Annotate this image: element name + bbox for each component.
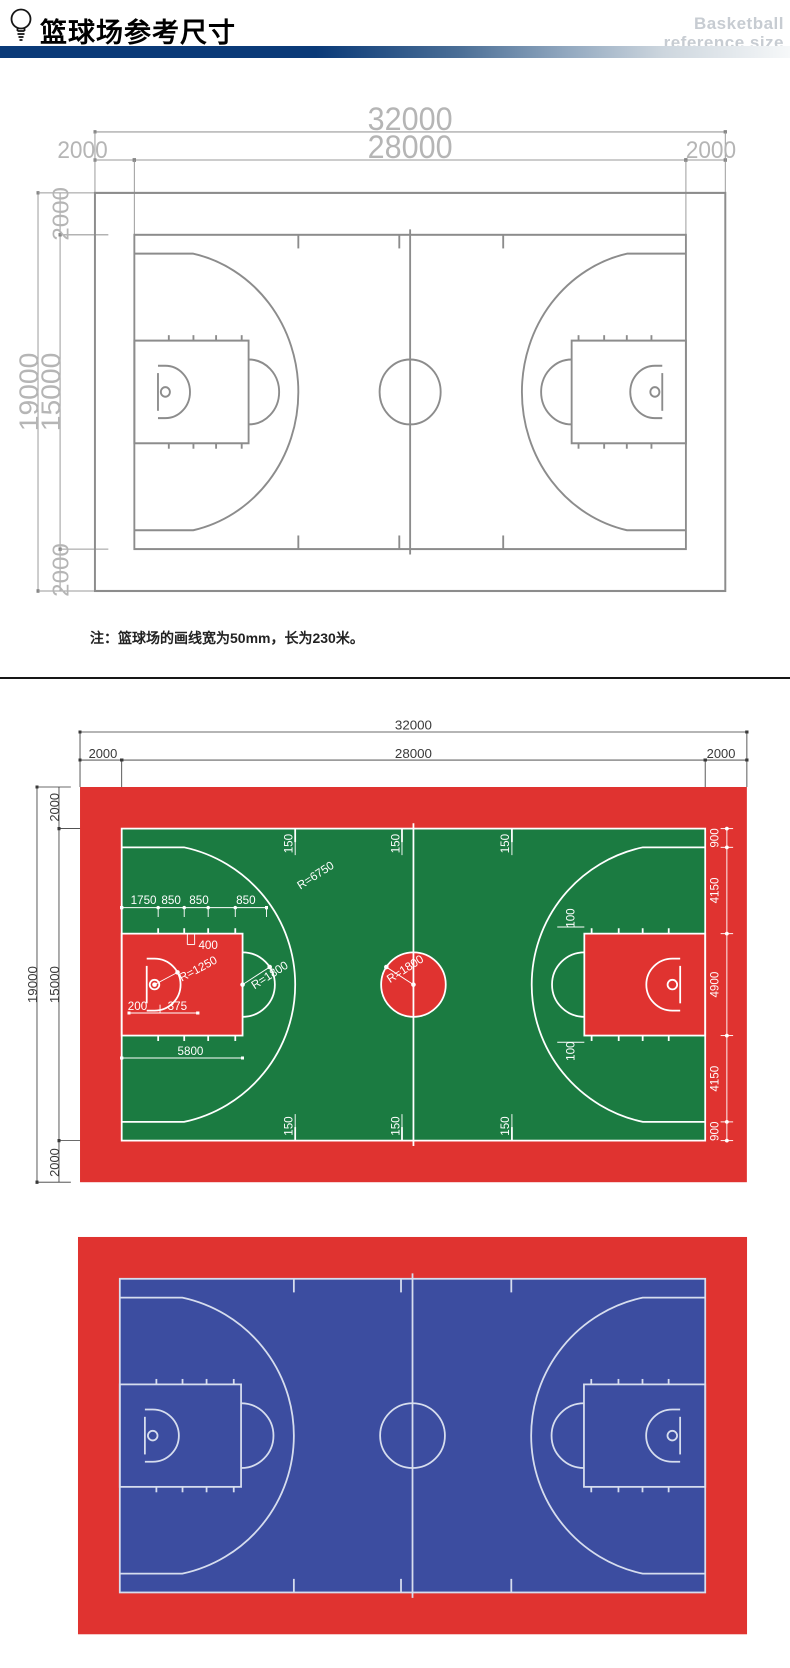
d2-offset-4150-top: 4150 bbox=[709, 877, 722, 903]
d2-margin-right-label: 2000 bbox=[707, 746, 736, 761]
d2-key-5800: 5800 bbox=[178, 1045, 204, 1058]
d2-board-200: 200 bbox=[128, 1000, 148, 1013]
diagram-colored-court: 32000 28000 2000 2000 19000 15000 2000 2… bbox=[0, 670, 760, 1195]
d1-court-width-label: 28000 bbox=[368, 128, 453, 165]
d1-court-drawing bbox=[134, 229, 686, 554]
english-subtitle-line1: Basketball bbox=[664, 14, 784, 33]
lightbulb-icon bbox=[8, 6, 34, 44]
d1-dimension-labels: 32000 28000 2000 2000 19000 15000 2000 2… bbox=[14, 100, 736, 597]
d1-margin-left-label: 2000 bbox=[57, 136, 107, 163]
page: 篮球场参考尺寸 Basketball reference size bbox=[0, 0, 790, 1668]
d2-chain-850: 850 bbox=[236, 894, 256, 907]
d2-hash-100-top: 100 bbox=[564, 908, 577, 928]
d2-mark-150: 150 bbox=[389, 1116, 402, 1136]
d2-chain-850: 850 bbox=[161, 894, 181, 907]
note-text: 注：篮球场的画线宽为50mm，长为230米。 bbox=[90, 628, 364, 648]
d2-court-height-label: 15000 bbox=[47, 966, 62, 1003]
diagram-line-court: 32000 28000 2000 2000 19000 15000 2000 2… bbox=[0, 85, 745, 600]
d2-total-height-label: 19000 bbox=[25, 966, 40, 1003]
d2-offset-900-bottom: 900 bbox=[709, 1121, 722, 1141]
header: 篮球场参考尺寸 Basketball reference size bbox=[0, 0, 790, 62]
d2-mark-150: 150 bbox=[499, 1116, 512, 1136]
d1-margin-top-label: 2000 bbox=[48, 187, 73, 241]
d2-total-width-label: 32000 bbox=[395, 718, 432, 733]
d2-offset-4900: 4900 bbox=[709, 971, 722, 997]
d2-offset-4150-bottom: 4150 bbox=[709, 1065, 722, 1091]
page-title: 篮球场参考尺寸 bbox=[40, 11, 236, 50]
diagram-blue-court bbox=[0, 1210, 760, 1660]
d2-chain-1750: 1750 bbox=[131, 894, 157, 907]
d2-court-width-label: 28000 bbox=[395, 746, 432, 761]
d2-mark-150: 150 bbox=[389, 833, 402, 853]
d2-mark-150: 150 bbox=[282, 1116, 295, 1136]
d2-margin-left-label: 2000 bbox=[89, 746, 118, 761]
d2-margin-bottom-label: 2000 bbox=[47, 1148, 62, 1177]
d1-margin-right-label: 2000 bbox=[686, 136, 736, 163]
d2-offset-900-top: 900 bbox=[709, 828, 722, 848]
header-accent-bar bbox=[0, 46, 790, 58]
d1-dimension-lines bbox=[38, 132, 725, 591]
d2-margin-top-label: 2000 bbox=[47, 793, 62, 822]
d1-margin-bottom-label: 2000 bbox=[48, 543, 73, 597]
d2-chain-850: 850 bbox=[189, 894, 209, 907]
d3-court-drawing bbox=[120, 1273, 705, 1598]
d2-mark-150: 150 bbox=[499, 833, 512, 853]
d2-mark-150: 150 bbox=[282, 833, 295, 853]
d1-court-height-label: 15000 bbox=[36, 353, 66, 432]
d2-neutral-400: 400 bbox=[198, 939, 218, 952]
d2-hash-100-bottom: 100 bbox=[564, 1041, 577, 1061]
d2-rim-375: 375 bbox=[168, 1000, 187, 1013]
